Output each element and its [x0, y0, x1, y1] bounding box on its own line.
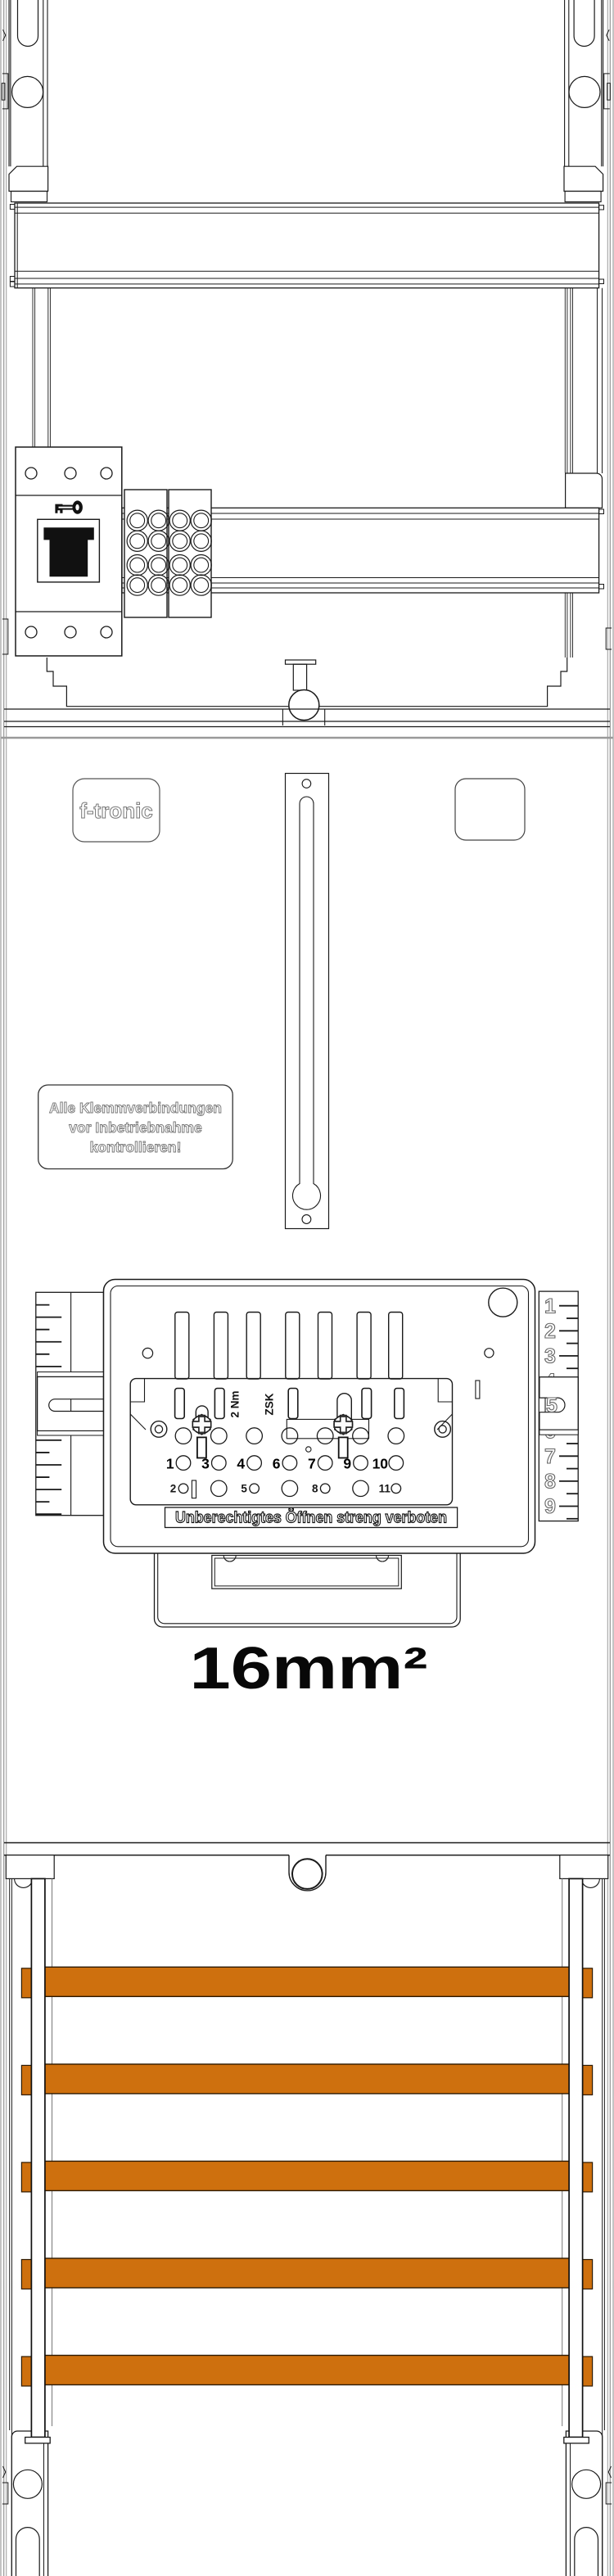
svg-text:9: 9: [544, 1495, 556, 1518]
svg-text:kontrollieren!: kontrollieren!: [90, 1139, 182, 1155]
svg-text:f-tronic: f-tronic: [79, 798, 153, 823]
svg-text:16mm²: 16mm²: [190, 1636, 428, 1702]
svg-text:5: 5: [546, 1394, 558, 1417]
svg-text:ZSK: ZSK: [264, 1393, 276, 1415]
svg-text:7: 7: [544, 1445, 556, 1468]
svg-text:10: 10: [372, 1455, 389, 1471]
svg-text:9: 9: [343, 1455, 351, 1471]
svg-text:5: 5: [241, 1483, 247, 1495]
svg-text:2 Nm: 2 Nm: [228, 1390, 241, 1417]
svg-text:11: 11: [379, 1483, 391, 1495]
svg-text:1: 1: [544, 1295, 556, 1317]
svg-text:3: 3: [544, 1345, 556, 1368]
svg-text:7: 7: [308, 1455, 316, 1471]
svg-text:6: 6: [273, 1455, 281, 1471]
svg-text:1: 1: [166, 1455, 174, 1471]
svg-text:vor Inbetriebnahme: vor Inbetriebnahme: [69, 1119, 202, 1136]
svg-text:8: 8: [544, 1471, 556, 1494]
svg-text:2: 2: [544, 1320, 556, 1343]
svg-text:8: 8: [312, 1483, 318, 1495]
svg-text:3: 3: [201, 1455, 210, 1471]
svg-text:Alle Klemmverbindungen: Alle Klemmverbindungen: [49, 1100, 222, 1116]
svg-text:4: 4: [237, 1455, 245, 1471]
svg-text:Unberechtigtes Öffnen streng v: Unberechtigtes Öffnen streng verboten: [175, 1508, 447, 1527]
svg-text:2: 2: [170, 1483, 177, 1495]
